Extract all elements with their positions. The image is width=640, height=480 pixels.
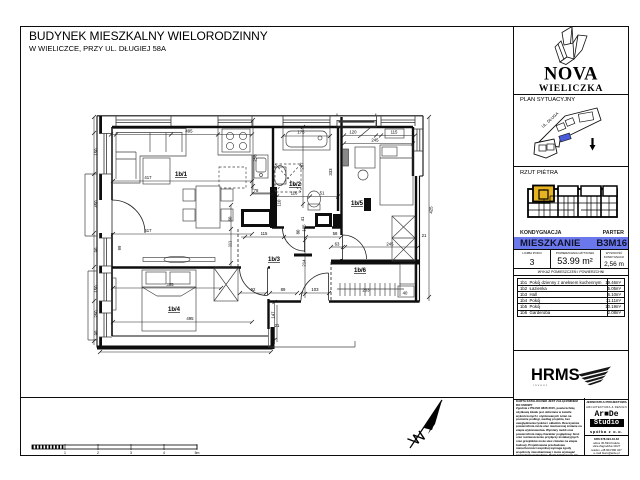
svg-text:92: 92 [251, 287, 256, 292]
svg-text:116: 116 [291, 191, 298, 196]
svg-text:425: 425 [429, 206, 434, 214]
svg-text:21: 21 [275, 323, 280, 328]
svg-text:115: 115 [261, 231, 268, 236]
svg-text:1b/1: 1b/1 [175, 172, 188, 178]
svg-text:1b/6: 1b/6 [354, 268, 367, 274]
svg-text:147: 147 [271, 311, 276, 319]
svg-text:495: 495 [186, 316, 194, 321]
svg-text:78: 78 [254, 188, 259, 193]
svg-text:63: 63 [335, 242, 340, 247]
svg-text:258: 258 [253, 154, 258, 162]
svg-text:417: 417 [144, 175, 152, 180]
svg-text:150: 150 [94, 285, 99, 293]
svg-text:60: 60 [228, 216, 233, 221]
svg-text:90: 90 [94, 247, 99, 252]
svg-text:1b/2: 1b/2 [289, 182, 302, 188]
svg-text:175: 175 [297, 130, 305, 135]
svg-text:51: 51 [320, 191, 325, 196]
svg-text:1b/5: 1b/5 [351, 201, 364, 207]
svg-text:333: 333 [328, 168, 333, 176]
svg-text:1b/3: 1b/3 [268, 257, 281, 263]
svg-text:115: 115 [391, 130, 398, 135]
svg-text:80: 80 [296, 229, 301, 234]
svg-text:90: 90 [94, 330, 99, 335]
svg-text:417: 417 [144, 228, 152, 233]
svg-text:89: 89 [281, 287, 286, 292]
svg-text:214: 214 [302, 259, 307, 267]
svg-text:250: 250 [94, 310, 99, 318]
svg-text:385: 385 [166, 282, 174, 287]
svg-text:203: 203 [362, 288, 370, 293]
svg-text:111: 111 [228, 240, 233, 247]
svg-text:150: 150 [94, 148, 99, 156]
svg-text:58: 58 [333, 231, 338, 236]
svg-text:105: 105 [302, 224, 307, 232]
svg-text:450: 450 [94, 200, 99, 208]
svg-text:245: 245 [386, 242, 394, 247]
svg-text:267: 267 [300, 162, 305, 170]
svg-text:120: 120 [349, 130, 357, 135]
svg-text:245: 245 [371, 138, 379, 143]
svg-text:1b/4: 1b/4 [168, 307, 181, 313]
svg-text:110: 110 [277, 199, 282, 206]
svg-text:21: 21 [422, 233, 427, 238]
svg-text:40: 40 [403, 291, 408, 296]
svg-text:103: 103 [311, 287, 319, 292]
svg-text:99: 99 [117, 245, 122, 250]
svg-text:495: 495 [185, 129, 193, 134]
svg-text:41: 41 [300, 216, 305, 221]
